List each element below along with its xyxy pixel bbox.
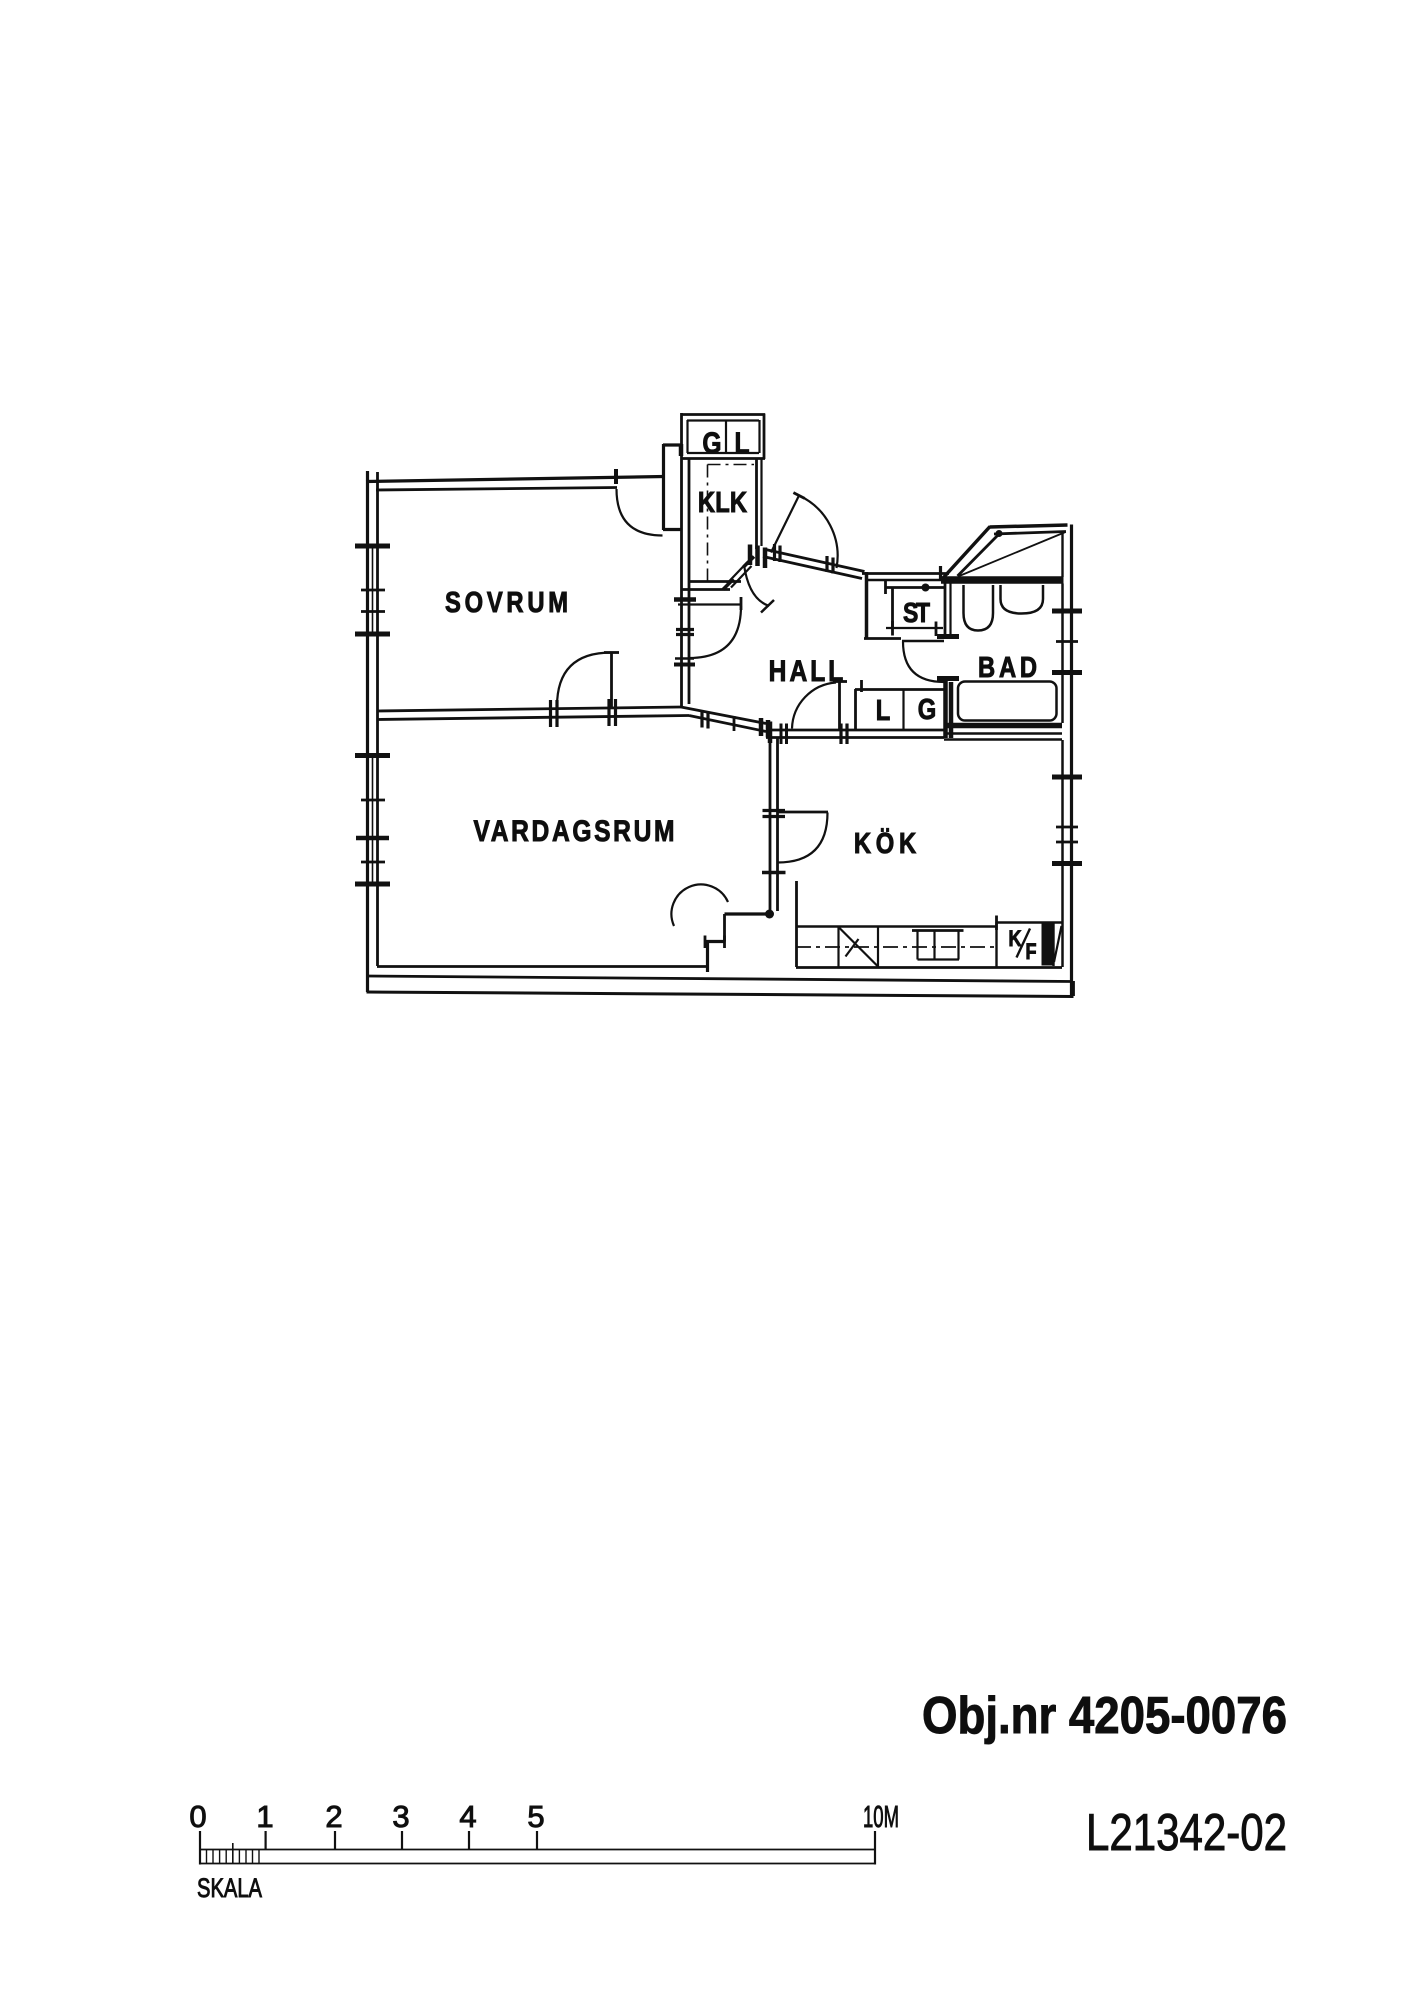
svg-text:0: 0 <box>189 1799 206 1834</box>
svg-text:SOVRUM: SOVRUM <box>445 586 568 619</box>
svg-text:5: 5 <box>527 1799 544 1834</box>
svg-text:SKALA: SKALA <box>197 1873 262 1903</box>
svg-text:ST: ST <box>903 598 930 629</box>
svg-text:2: 2 <box>325 1799 342 1834</box>
svg-text:KÖK: KÖK <box>854 827 916 860</box>
svg-text:1: 1 <box>256 1799 273 1834</box>
svg-text:10M: 10M <box>863 1799 899 1834</box>
svg-text:L: L <box>876 694 891 727</box>
svg-text:BAD: BAD <box>978 651 1037 684</box>
svg-text:K: K <box>1008 927 1021 951</box>
svg-text:3: 3 <box>392 1799 409 1834</box>
svg-text:L: L <box>735 426 750 460</box>
svg-text:HALL: HALL <box>769 654 844 688</box>
svg-text:F: F <box>1025 940 1036 964</box>
svg-text:VARDAGSRUM: VARDAGSRUM <box>474 814 675 848</box>
svg-text:L21342-02: L21342-02 <box>1086 1804 1287 1862</box>
svg-text:G: G <box>702 426 721 460</box>
svg-text:Obj.nr 4205-0076: Obj.nr 4205-0076 <box>922 1687 1287 1745</box>
svg-text:KLK: KLK <box>698 486 747 519</box>
svg-text:G: G <box>918 693 936 726</box>
svg-text:4: 4 <box>459 1799 476 1834</box>
